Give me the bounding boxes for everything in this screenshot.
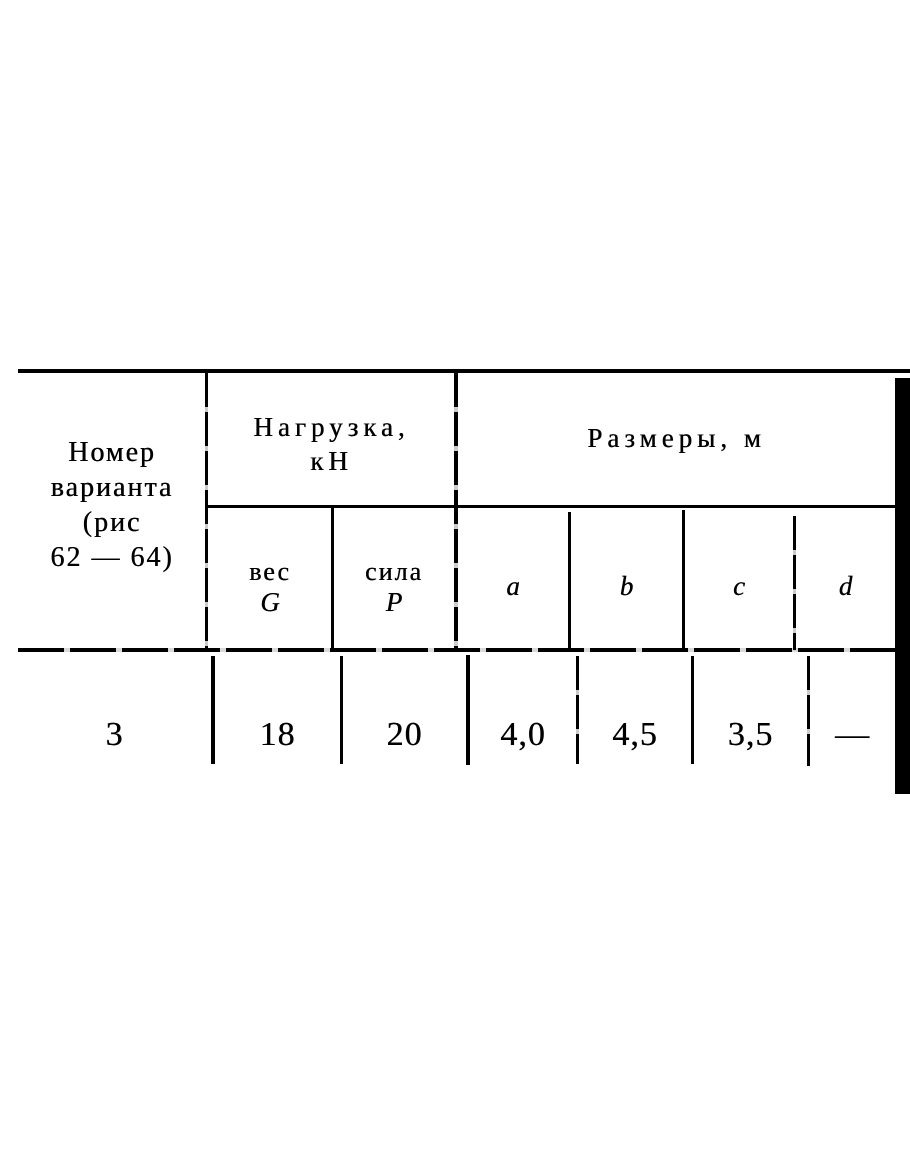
row-variant-value: 3	[106, 716, 124, 754]
weight-symbol: G	[260, 587, 280, 618]
row-c-cell: 3,5	[694, 706, 807, 764]
variant-data-table: Номер варианта (рис 62 — 64) Нагрузка, к…	[0, 0, 910, 1155]
row-variant-cell: 3	[18, 706, 211, 764]
row-force-cell: 20	[343, 706, 466, 764]
scanned-page: Номер варианта (рис 62 — 64) Нагрузка, к…	[0, 0, 910, 1155]
force-symbol: Р	[386, 587, 403, 618]
table-top-border	[18, 369, 910, 373]
variant-header-line3: (рис	[83, 505, 142, 540]
load-title-line1: Нагрузка,	[253, 410, 409, 444]
dim-d-label: d	[839, 571, 853, 602]
dim-d-header-cell: d	[796, 565, 895, 607]
row-weight-value: 18	[260, 716, 296, 754]
row-d-value: —	[835, 716, 870, 754]
vline-load-dims	[454, 373, 458, 650]
force-subheader-cell: сила Р	[334, 546, 454, 628]
weight-subheader-cell: вес G	[209, 546, 331, 628]
row-a-cell: 4,0	[470, 706, 576, 764]
load-title-line2: кН	[310, 444, 353, 478]
load-group-header-cell: Нагрузка, кН	[209, 406, 454, 482]
dim-c-header-cell: c	[685, 565, 793, 607]
row-c-value: 3,5	[728, 716, 774, 754]
header-body-divider	[18, 648, 910, 652]
scan-gutter-bar	[895, 378, 910, 794]
dims-title: Размеры, м	[587, 421, 766, 455]
dim-b-header-cell: b	[571, 565, 682, 607]
variant-header-line2: варианта	[51, 470, 174, 505]
row-b-value: 4,5	[612, 716, 658, 754]
dim-a-header-cell: a	[458, 565, 568, 607]
force-label: сила	[365, 556, 423, 587]
row-b-cell: 4,5	[579, 706, 691, 764]
variant-header-cell: Номер варианта (рис 62 — 64)	[18, 432, 206, 577]
dim-a-label: a	[506, 571, 520, 602]
dims-group-header-cell: Размеры, м	[458, 418, 895, 458]
row-a-value: 4,0	[500, 716, 546, 754]
weight-label: вес	[249, 556, 291, 587]
row-weight-cell: 18	[215, 706, 340, 764]
variant-header-line1: Номер	[68, 435, 156, 470]
row-d-cell: —	[810, 706, 895, 764]
row-force-value: 20	[387, 716, 423, 754]
dim-c-label: c	[733, 571, 745, 602]
variant-header-line4: 62 — 64)	[50, 540, 173, 575]
group-header-divider	[206, 505, 903, 508]
dim-b-label: b	[620, 571, 634, 602]
